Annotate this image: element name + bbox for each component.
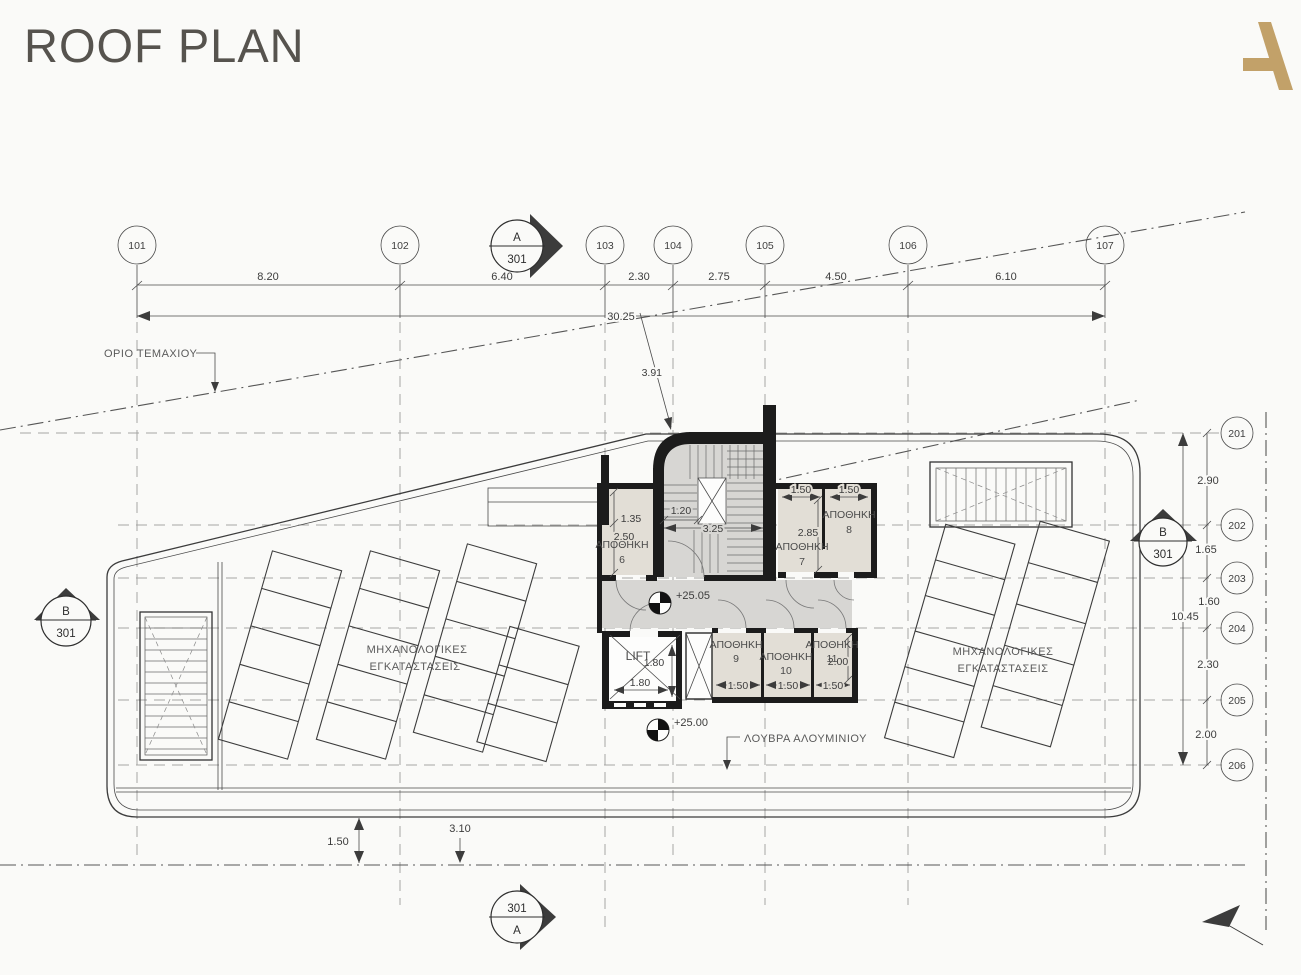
dim-3-91: 3.91	[642, 367, 663, 379]
grid-right: 201 202 203 204 205 206 2.90 1.65 1.60 2…	[1171, 417, 1253, 781]
svg-text:ΛΟΥΒΡΑ ΑΛΟΥΜΙΝΙΟΥ: ΛΟΥΒΡΑ ΑΛΟΥΜΙΝΙΟΥ	[744, 733, 867, 745]
grid-bubble-107: 107	[1086, 226, 1124, 264]
dim-lift-w: 1.80	[630, 677, 651, 689]
dim-1-65: 1.65	[1195, 544, 1216, 556]
label-storage10-num: 10	[780, 665, 792, 677]
dim-2-75: 2.75	[708, 271, 729, 283]
grid-bubble-204: 204	[1221, 612, 1253, 644]
section-marker-top: A 301	[489, 214, 563, 278]
svg-text:B: B	[62, 606, 70, 618]
grid-bubble-102: 102	[381, 226, 419, 264]
annotation-site-boundary: ΟΡΙΟ ΤΕΜΑΧΙΟΥ	[104, 348, 219, 392]
brand-logo-icon	[1243, 22, 1293, 90]
dim-s10-w: 1.50	[778, 680, 799, 692]
dim-3-10-south: 3.10	[449, 823, 470, 835]
grid-bubble-202: 202	[1221, 509, 1253, 541]
dim-s11-w: 1.50	[823, 680, 844, 692]
dim-6-10: 6.10	[995, 271, 1016, 283]
dim-1-20: 1.20	[671, 505, 692, 517]
annotation-mech-left: ΜΗΧΑΝΟΛΟΓΙΚΕΣ ΕΓΚΑΤΑΣΤΑΣΕΙΣ	[367, 644, 468, 673]
dim-s7-w: 1.50	[791, 484, 812, 496]
dim-s8-w: 1.50	[839, 484, 860, 496]
dim-2-30-r: 2.30	[1197, 659, 1218, 671]
dim-8-20: 8.20	[257, 271, 278, 283]
grid-bubble-206: 206	[1221, 749, 1253, 781]
svg-text:205: 205	[1228, 695, 1246, 707]
svg-text:301: 301	[1153, 549, 1172, 561]
svg-text:B: B	[1159, 527, 1167, 539]
roof-louver-left	[140, 612, 212, 760]
grid-bubble-203: 203	[1221, 562, 1253, 594]
svg-text:202: 202	[1228, 520, 1246, 532]
dim-6-40: 6.40	[491, 271, 512, 283]
svg-text:101: 101	[128, 240, 146, 252]
corridor-floor	[600, 580, 852, 628]
svg-text:A: A	[513, 925, 521, 937]
svg-text:102: 102	[391, 240, 409, 252]
level-lower-label: +25.00	[674, 717, 708, 729]
roof-louver-top-right	[930, 462, 1072, 527]
grid-bubble-104: 104	[654, 226, 692, 264]
label-storage7: ΑΠΟΘΗΚΗ	[775, 541, 828, 553]
roof-plan-sheet: ROOF PLAN	[0, 0, 1301, 975]
level-marker-lower: +25.00	[647, 717, 708, 741]
dim-1-60: 1.60	[1198, 596, 1219, 608]
north-pointer	[1202, 905, 1263, 945]
svg-text:107: 107	[1096, 240, 1114, 252]
dim-2-90: 2.90	[1197, 475, 1218, 487]
svg-text:301: 301	[507, 903, 526, 915]
dim-1-35: 1.35	[621, 513, 642, 525]
label-storage9: ΑΠΟΘΗΚΗ	[709, 639, 762, 651]
section-marker-left: B 301	[34, 588, 100, 646]
svg-text:ΜΗΧΑΝΟΛΟΓΙΚΕΣ: ΜΗΧΑΝΟΛΟΓΙΚΕΣ	[953, 646, 1054, 658]
level-upper-label: +25.05	[676, 590, 710, 602]
dim-s9-w: 1.50	[728, 680, 749, 692]
section-marker-bottom: 301 A	[489, 884, 556, 950]
label-storage6-num: 6	[619, 554, 625, 566]
svg-text:301: 301	[56, 628, 75, 640]
label-lift: LIFT	[626, 649, 651, 663]
dim-4-50: 4.50	[825, 271, 846, 283]
dim-overall-30-25: 30.25	[607, 311, 635, 323]
grid-bubble-201: 201	[1221, 417, 1253, 449]
page-title: ROOF PLAN	[24, 18, 305, 73]
offset-leader: 3.91	[640, 313, 672, 430]
svg-text:203: 203	[1228, 573, 1246, 585]
grid-bubble-205: 205	[1221, 684, 1253, 716]
svg-text:A: A	[513, 232, 521, 244]
svg-text:ΕΓΚΑΤΑΣΤΑΣΕΙΣ: ΕΓΚΑΤΑΣΤΑΣΕΙΣ	[369, 661, 460, 673]
dim-2-00-r: 2.00	[1195, 729, 1216, 741]
svg-text:ΟΡΙΟ ΤΕΜΑΧΙΟΥ: ΟΡΙΟ ΤΕΜΑΧΙΟΥ	[104, 348, 198, 360]
svg-text:106: 106	[899, 240, 917, 252]
equipment-panels-right	[885, 521, 1110, 757]
label-storage8: ΑΠΟΘΗΚΗ	[822, 509, 875, 521]
svg-text:201: 201	[1228, 428, 1246, 440]
label-storage9-num: 9	[733, 653, 739, 665]
annotation-mech-right: ΜΗΧΑΝΟΛΟΓΙΚΕΣ ΕΓΚΑΤΑΣΤΑΣΕΙΣ	[953, 646, 1054, 675]
grid-top: 101 102 103 104 105 106 107 8.20 6.40 2.…	[118, 226, 1124, 323]
svg-text:ΕΓΚΑΤΑΣΤΑΣΕΙΣ: ΕΓΚΑΤΑΣΤΑΣΕΙΣ	[957, 663, 1048, 675]
label-storage8-num: 8	[846, 524, 852, 536]
plan-drawing: 101 102 103 104 105 106 107 8.20 6.40 2.…	[0, 0, 1301, 975]
svg-text:301: 301	[507, 254, 526, 266]
grid-bubble-103: 103	[586, 226, 624, 264]
grid-bubble-105: 105	[746, 226, 784, 264]
annotation-louvers: ΛΟΥΒΡΑ ΑΛΟΥΜΙΝΙΟΥ	[723, 733, 867, 770]
grid-bubble-101: 101	[118, 226, 156, 264]
label-storage6: ΑΠΟΘΗΚΗ	[595, 539, 648, 551]
label-storage7-num: 7	[799, 556, 805, 568]
dim-3-25: 3.25	[703, 523, 724, 535]
dim-2-30: 2.30	[628, 271, 649, 283]
svg-text:ΜΗΧΑΝΟΛΟΓΙΚΕΣ: ΜΗΧΑΝΟΛΟΓΙΚΕΣ	[367, 644, 468, 656]
dim-1-50-south: 1.50	[327, 836, 348, 848]
label-storage11: ΑΠΟΘΗΚΗ	[805, 639, 858, 651]
svg-text:206: 206	[1228, 760, 1246, 772]
svg-text:104: 104	[664, 240, 682, 252]
svg-text:105: 105	[756, 240, 774, 252]
label-storage11-num: 11	[827, 653, 838, 665]
dims-bottom: 1.50 3.10	[327, 818, 470, 863]
dim-2-85: 2.85	[798, 527, 819, 539]
svg-text:103: 103	[596, 240, 614, 252]
svg-text:204: 204	[1228, 623, 1246, 635]
dim-overall-10-45: 10.45	[1171, 611, 1199, 623]
label-storage10: ΑΠΟΘΗΚΗ	[759, 651, 812, 663]
grid-bubble-106: 106	[889, 226, 927, 264]
